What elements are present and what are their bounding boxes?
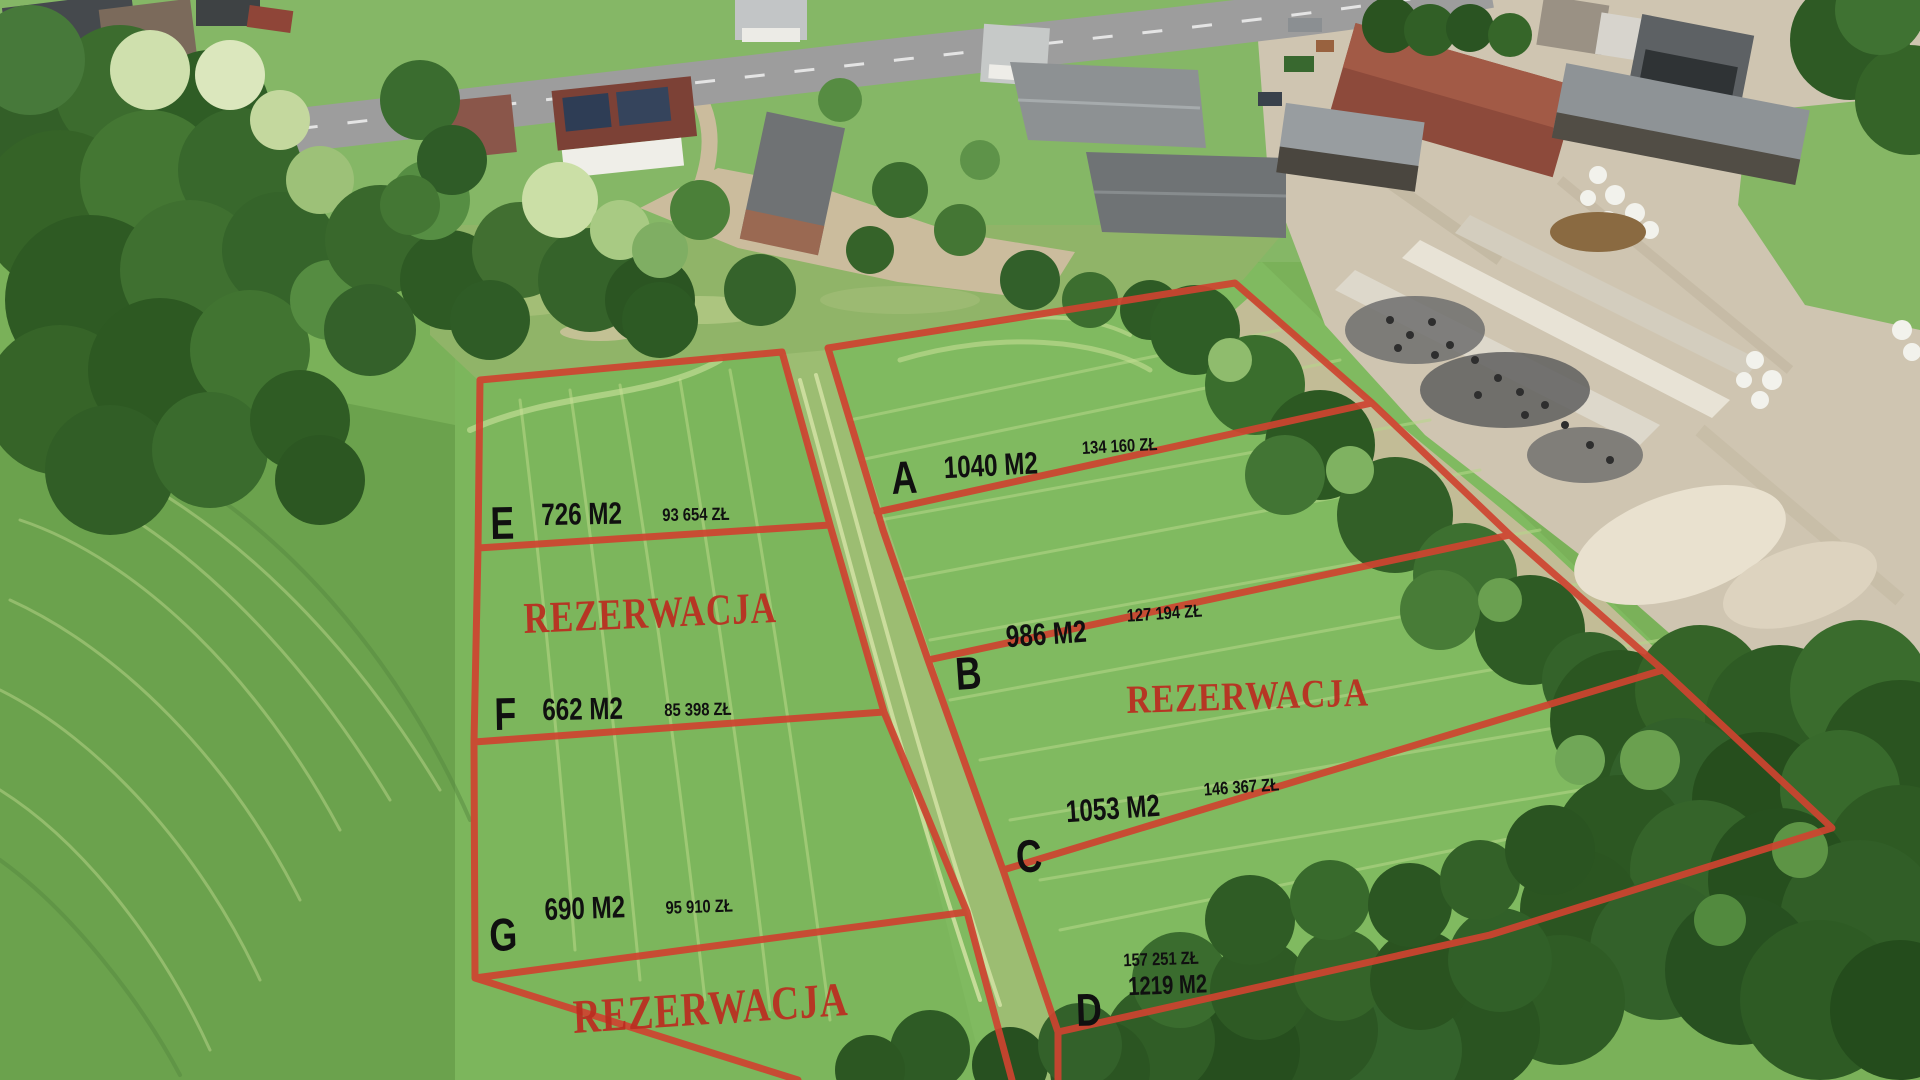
plot-area: 986 M2 xyxy=(1005,616,1088,653)
plot-price: 146 367 ZŁ xyxy=(1203,775,1280,798)
aerial-plot-offer-image: A 1040 M2 134 160 ZŁ B 986 M2 127 194 ZŁ… xyxy=(0,0,1920,1080)
plot-label-f: F 662 M2 85 398 ZŁ xyxy=(494,691,746,737)
plot-label-g: G 690 M2 95 910 ZŁ xyxy=(488,887,749,958)
plot-area: 1053 M2 xyxy=(1065,790,1161,827)
plot-price: 157 251 ZŁ xyxy=(1123,948,1210,969)
plot-area: 1040 M2 xyxy=(943,447,1039,483)
reservation-label-left: REZERWACJA xyxy=(523,586,777,641)
plot-label-e: E 726 M2 93 654 ZŁ xyxy=(490,496,745,546)
plot-area: 1219 M2 xyxy=(1128,970,1208,999)
plot-letter: E xyxy=(490,500,515,546)
plot-letter: G xyxy=(489,911,518,958)
plot-price: 127 194 ZŁ xyxy=(1126,602,1203,625)
plot-letter: C xyxy=(1014,832,1043,880)
plot-price: 93 654 ZŁ xyxy=(662,505,730,524)
plot-price: 85 398 ZŁ xyxy=(664,700,732,719)
plot-letter: D xyxy=(1075,986,1103,1033)
plot-letter: F xyxy=(494,691,517,737)
plot-letter: B xyxy=(954,649,983,697)
reservation-label-right: REZERWACJA xyxy=(1126,672,1369,720)
plot-area: 690 M2 xyxy=(544,891,626,925)
aerial-photo xyxy=(0,0,1920,1080)
plot-area: 726 M2 xyxy=(541,498,622,530)
plot-label-d: D 157 251 ZŁ 1219 M2 xyxy=(1074,948,1231,1033)
plot-price: 95 910 ZŁ xyxy=(665,896,733,916)
manure-pile xyxy=(1550,212,1646,252)
plot-price: 134 160 ZŁ xyxy=(1081,435,1157,457)
plot-letter: A xyxy=(890,454,918,501)
plot-area: 662 M2 xyxy=(542,693,623,725)
